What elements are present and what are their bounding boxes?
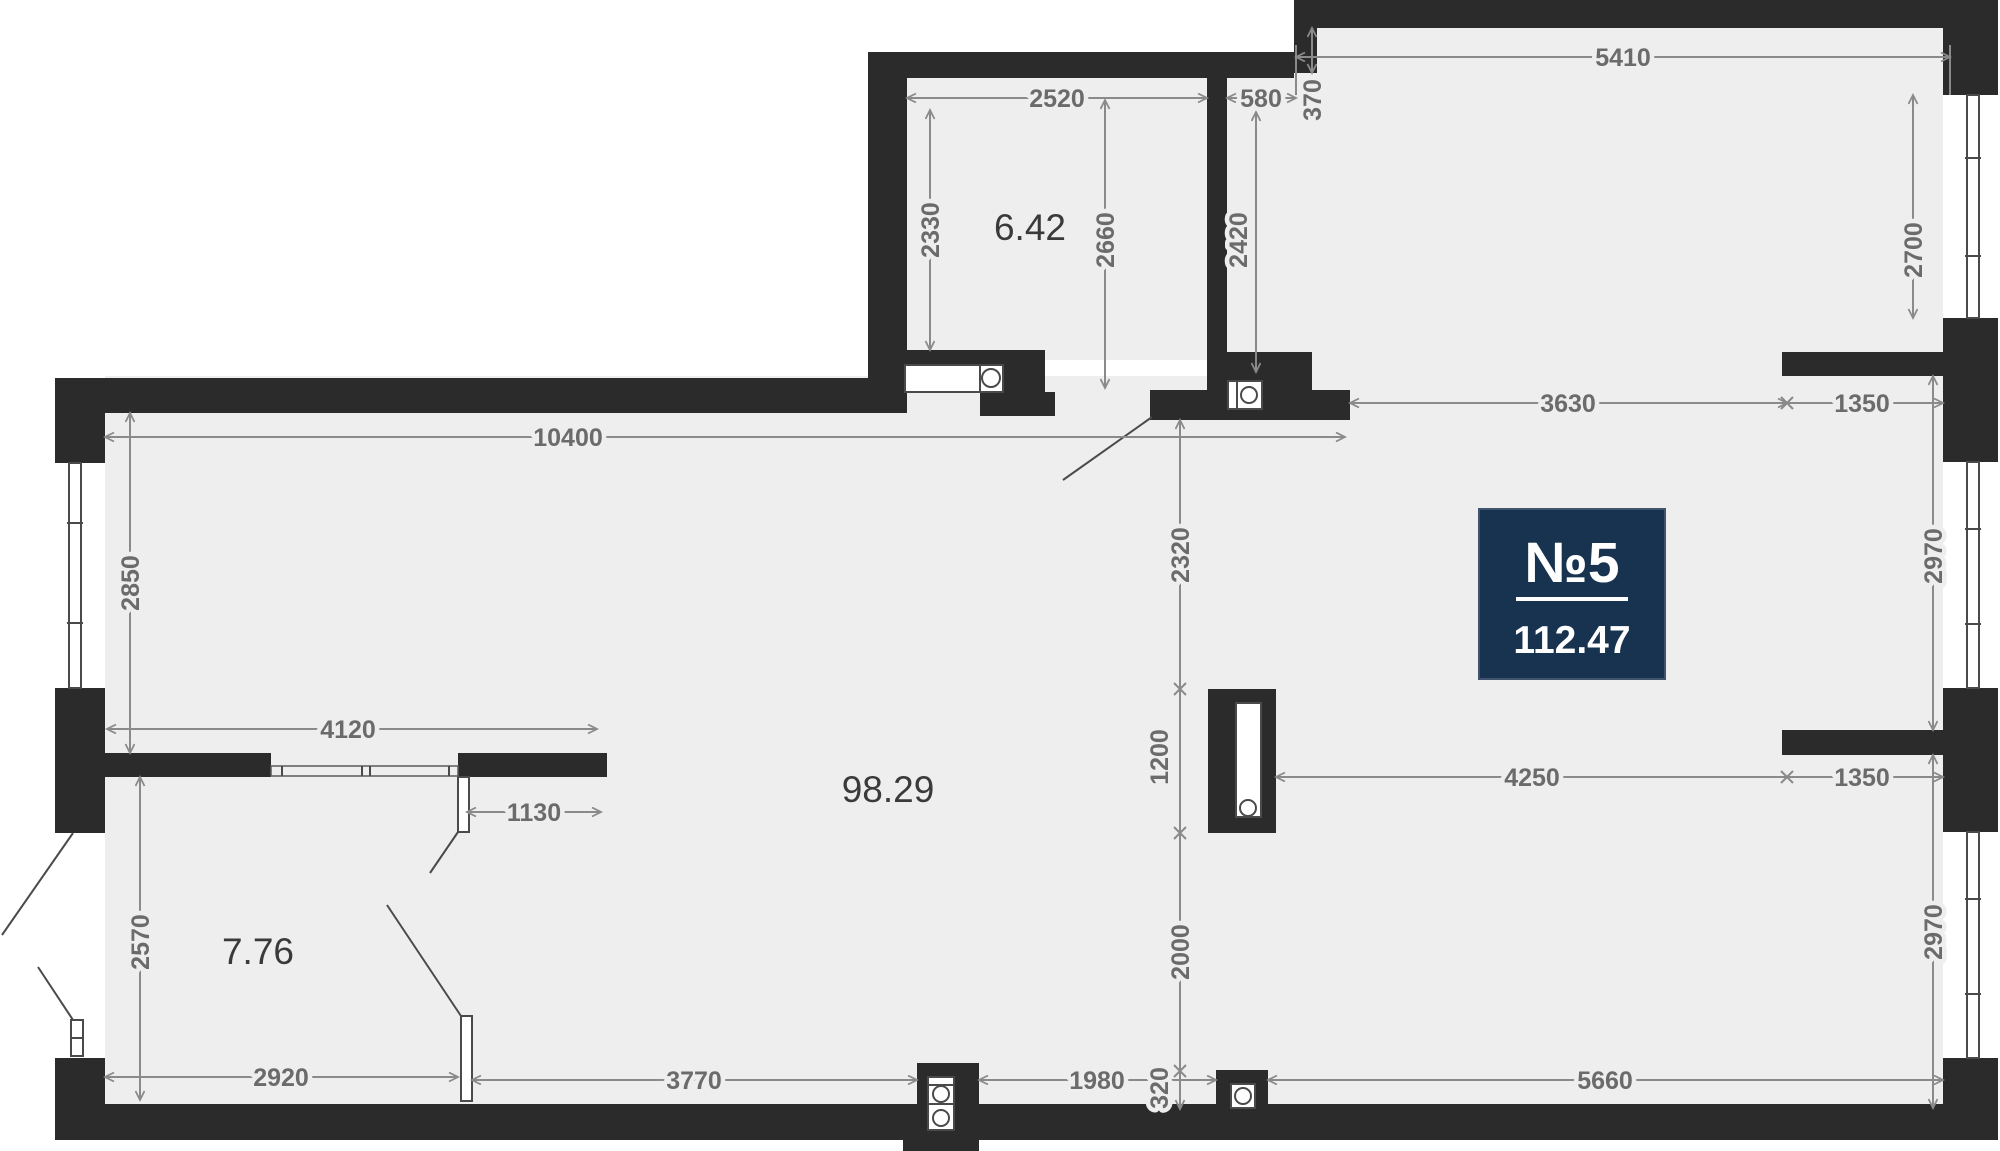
wall-storage-step: [980, 392, 1055, 416]
wall-top-living: [1317, 0, 1998, 28]
dim-3770: 3770: [666, 1067, 722, 1095]
dim-2320: 2320: [1167, 527, 1195, 583]
dim-2570: 2570: [127, 914, 155, 970]
shaft-vent-circle: [933, 1110, 949, 1126]
window-left-frame: [69, 463, 81, 688]
floor-living: [1300, 25, 1943, 407]
wardrobe-door-leaf-bottom: [461, 1016, 472, 1101]
dim-1980: 1980: [1069, 1067, 1125, 1095]
dim-2000: 2000: [1167, 924, 1195, 980]
dim-5660: 5660: [1577, 1067, 1633, 1095]
wall-right-3: [1943, 688, 1998, 832]
dim-1350-top: 1350: [1834, 390, 1890, 418]
glass-partition: [271, 766, 458, 776]
dim-2700: 2700: [1900, 222, 1928, 278]
hall-fixture-vent-circle: [1241, 387, 1257, 403]
badge-divider: [1516, 597, 1628, 601]
badge-number: №5: [1524, 531, 1619, 595]
dim-1130: 1130: [507, 799, 561, 827]
wall-partition-right: [458, 753, 607, 777]
wall-bottom: [55, 1104, 1998, 1140]
shaft-vent-circle: [933, 1086, 949, 1102]
room-label-wardrobe: 7.76: [222, 931, 294, 972]
wall-right-4: [1943, 1058, 1998, 1140]
shaft-vent-circle: [1235, 1088, 1251, 1104]
wall-stub-top-right: [1782, 352, 1943, 376]
dim-2970-bottom: 2970: [1920, 904, 1948, 960]
wall-shaft-bottom-left-ext: [903, 1138, 979, 1151]
wall-right-2: [1943, 318, 1998, 462]
window-right-top-frame: [1967, 95, 1979, 318]
dim-2970-mid: 2970: [1920, 528, 1948, 584]
wall-hall-vertical: [1207, 73, 1227, 403]
dim-580: 580: [1240, 85, 1282, 113]
dim-1200: 1200: [1146, 729, 1174, 785]
column-shaft-vent-circle: [1240, 800, 1256, 816]
room-label-storage: 6.42: [994, 207, 1066, 248]
wall-left-pier: [55, 378, 105, 463]
dim-2420: 2420: [1225, 212, 1253, 268]
wardrobe-door-leaf-top: [458, 777, 469, 832]
dim-2920: 2920: [253, 1064, 309, 1092]
dim-3630: 3630: [1540, 390, 1596, 418]
wall-step: [1294, 0, 1317, 73]
dim-1350-bottom: 1350: [1834, 764, 1890, 792]
floor-surfaces: [105, 25, 1943, 1104]
dim-320: 320: [1146, 1067, 1174, 1109]
wall-partition-left: [105, 753, 271, 777]
dim-2330: 2330: [917, 202, 945, 258]
dim-10400: 10400: [533, 424, 603, 452]
wall-top-storage: [868, 52, 1294, 78]
dim-2520: 2520: [1029, 85, 1085, 113]
apartment-badge: №5 112.47: [1479, 509, 1665, 679]
room-label-main: 98.29: [842, 769, 935, 810]
window-right-bottom-frame: [1967, 832, 1979, 1058]
wall-left-mid: [55, 688, 105, 833]
badge-area: 112.47: [1513, 619, 1630, 662]
dim-2850: 2850: [117, 555, 145, 611]
wall-band-left-wing: [105, 378, 868, 413]
dim-4120: 4120: [320, 716, 376, 744]
dim-5410: 5410: [1595, 44, 1651, 72]
floor-plan-canvas: 2520 580 5410 2330 2660 2420 370 2700 36…: [0, 0, 2000, 1151]
storage-fixture-vent-circle: [982, 369, 1000, 387]
dim-2660: 2660: [1092, 212, 1120, 268]
dim-370: 370: [1299, 79, 1327, 121]
window-right-mid-frame: [1967, 462, 1979, 688]
floor-main: [105, 376, 1943, 1104]
wall-stub-bottom-right: [1782, 730, 1943, 755]
dim-4250: 4250: [1504, 764, 1560, 792]
floor-plan-drawing: 2520 580 5410 2330 2660 2420 370 2700 36…: [0, 0, 2000, 1151]
